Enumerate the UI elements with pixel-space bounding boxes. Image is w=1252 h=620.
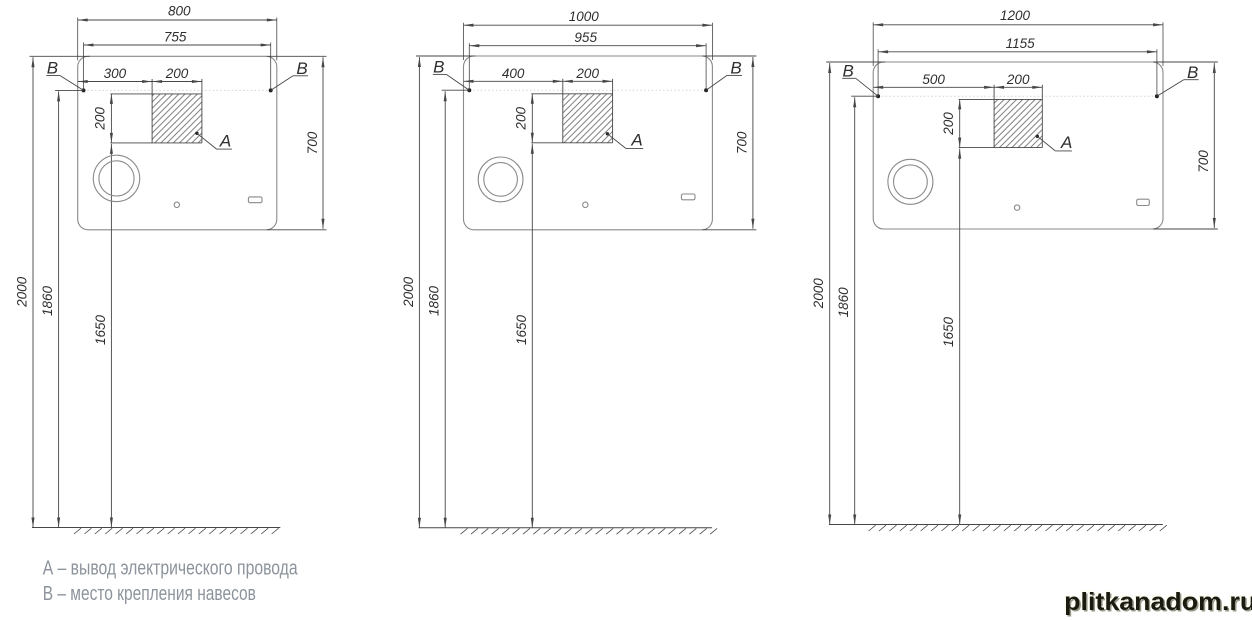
svg-text:2000: 2000 [15, 276, 30, 308]
svg-text:200: 200 [93, 107, 108, 131]
svg-text:700: 700 [1196, 150, 1211, 173]
svg-text:200: 200 [514, 107, 529, 131]
svg-text:B: B [1187, 63, 1198, 82]
svg-text:200: 200 [575, 66, 599, 81]
svg-text:B: B [730, 59, 741, 78]
svg-text:200: 200 [165, 66, 189, 81]
svg-text:А – вывод электрического прово: А – вывод электрического провода [43, 556, 298, 579]
svg-text:200: 200 [1006, 72, 1030, 87]
svg-text:B: B [843, 61, 854, 80]
svg-text:1860: 1860 [427, 285, 442, 316]
svg-text:2000: 2000 [401, 276, 416, 308]
svg-text:300: 300 [104, 66, 127, 81]
svg-text:B: B [433, 58, 444, 77]
svg-text:400: 400 [502, 66, 525, 81]
svg-text:A: A [1060, 133, 1072, 152]
svg-text:700: 700 [735, 131, 750, 154]
svg-text:2000: 2000 [811, 278, 826, 310]
svg-text:A: A [219, 131, 231, 150]
svg-text:1860: 1860 [836, 287, 851, 318]
svg-text:200: 200 [941, 112, 956, 136]
svg-text:plitkanadom.ru: plitkanadom.ru [1064, 588, 1252, 616]
svg-text:1650: 1650 [941, 316, 956, 347]
svg-text:1650: 1650 [93, 314, 108, 345]
svg-text:1860: 1860 [40, 285, 55, 316]
svg-text:1000: 1000 [569, 9, 600, 24]
svg-text:В – место крепления навесов: В – место крепления навесов [43, 582, 256, 605]
svg-text:1200: 1200 [1000, 8, 1031, 23]
svg-text:755: 755 [164, 30, 187, 45]
svg-text:B: B [296, 59, 307, 78]
svg-text:1650: 1650 [514, 314, 529, 345]
svg-text:500: 500 [922, 72, 945, 87]
svg-text:800: 800 [168, 3, 191, 18]
svg-text:A: A [630, 131, 642, 150]
svg-text:1155: 1155 [1006, 36, 1036, 51]
svg-text:955: 955 [574, 30, 597, 45]
svg-text:700: 700 [305, 131, 320, 154]
svg-text:B: B [47, 59, 58, 78]
